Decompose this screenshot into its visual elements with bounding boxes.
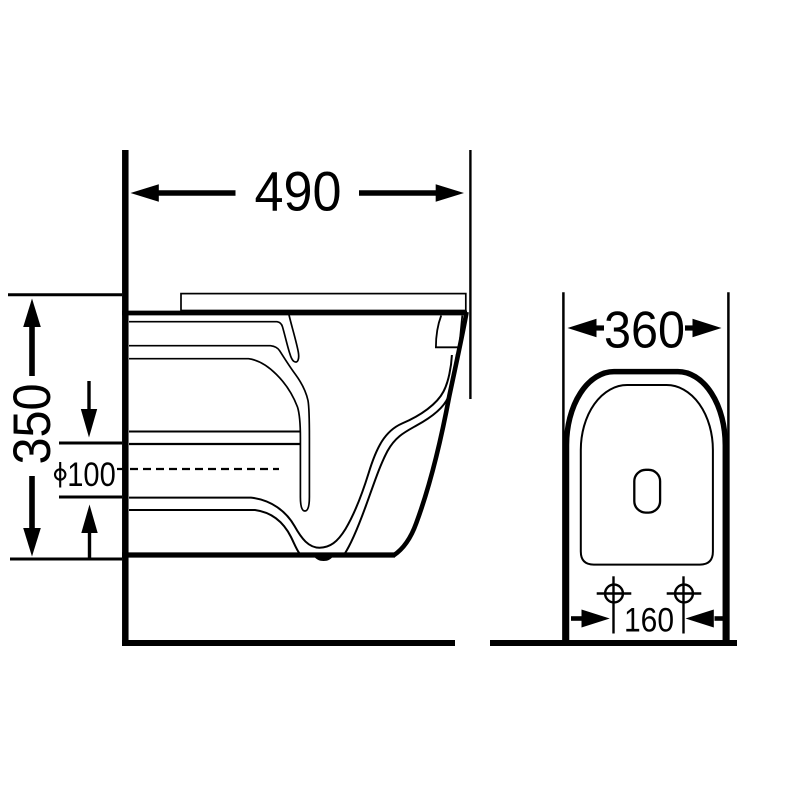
svg-text:160: 160 — [624, 601, 674, 639]
svg-text:350: 350 — [3, 384, 62, 465]
svg-text:490: 490 — [255, 160, 342, 223]
svg-text:360: 360 — [604, 302, 685, 360]
svg-text:100: 100 — [67, 456, 116, 494]
